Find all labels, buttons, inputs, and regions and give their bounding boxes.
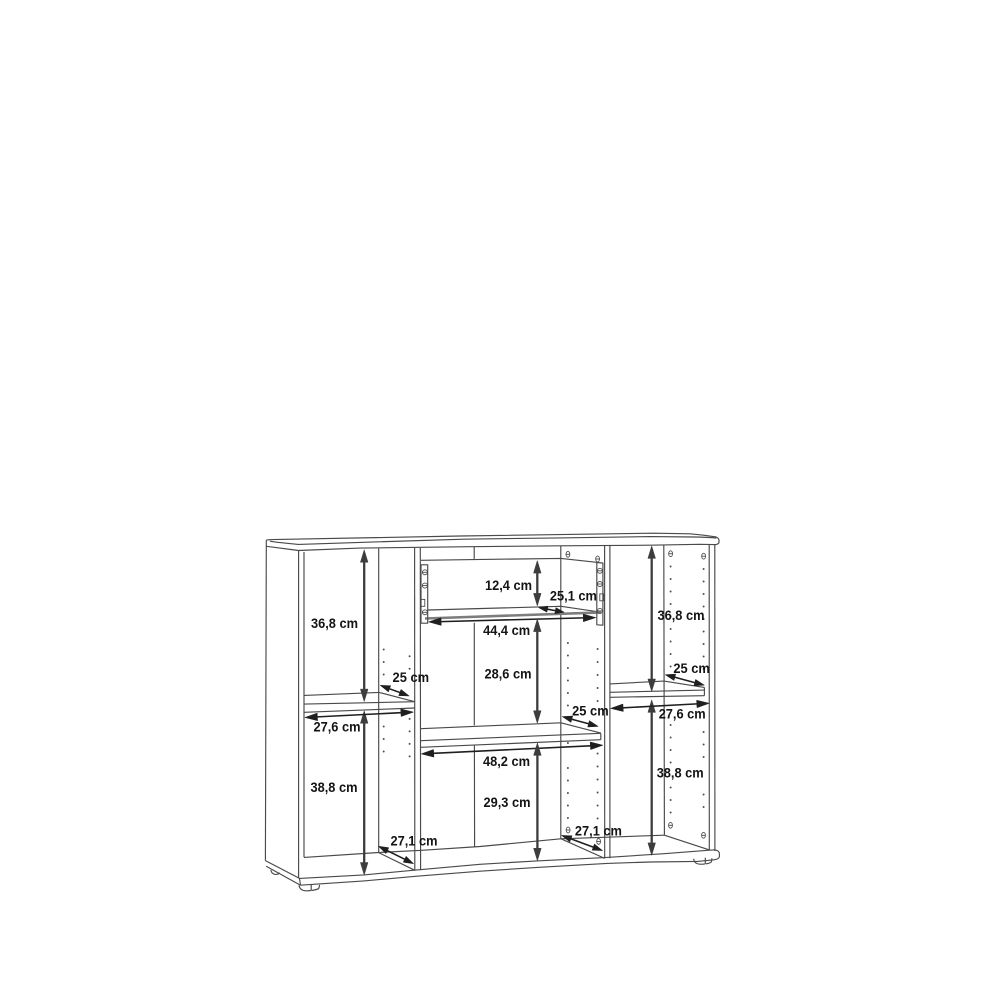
svg-text:12,4 cm: 12,4 cm (485, 577, 532, 593)
svg-text:44,4 cm: 44,4 cm (483, 622, 530, 638)
svg-text:25 cm: 25 cm (673, 660, 710, 676)
svg-text:36,8 cm: 36,8 cm (311, 615, 358, 631)
svg-text:38,8 cm: 38,8 cm (657, 765, 704, 781)
svg-text:48,2 cm: 48,2 cm (483, 753, 530, 769)
svg-text:27,6 cm: 27,6 cm (314, 719, 361, 735)
svg-text:36,8 cm: 36,8 cm (658, 607, 705, 623)
svg-text:25,1 cm: 25,1 cm (550, 587, 597, 603)
svg-text:28,6 cm: 28,6 cm (485, 666, 532, 682)
svg-text:29,3 cm: 29,3 cm (484, 794, 531, 810)
svg-text:27,6 cm: 27,6 cm (659, 706, 706, 722)
svg-text:38,8 cm: 38,8 cm (311, 779, 358, 795)
svg-text:27,1 cm: 27,1 cm (391, 832, 438, 848)
svg-text:27,1 cm: 27,1 cm (575, 822, 622, 838)
svg-text:25 cm: 25 cm (393, 669, 430, 685)
svg-text:25 cm: 25 cm (572, 702, 609, 718)
